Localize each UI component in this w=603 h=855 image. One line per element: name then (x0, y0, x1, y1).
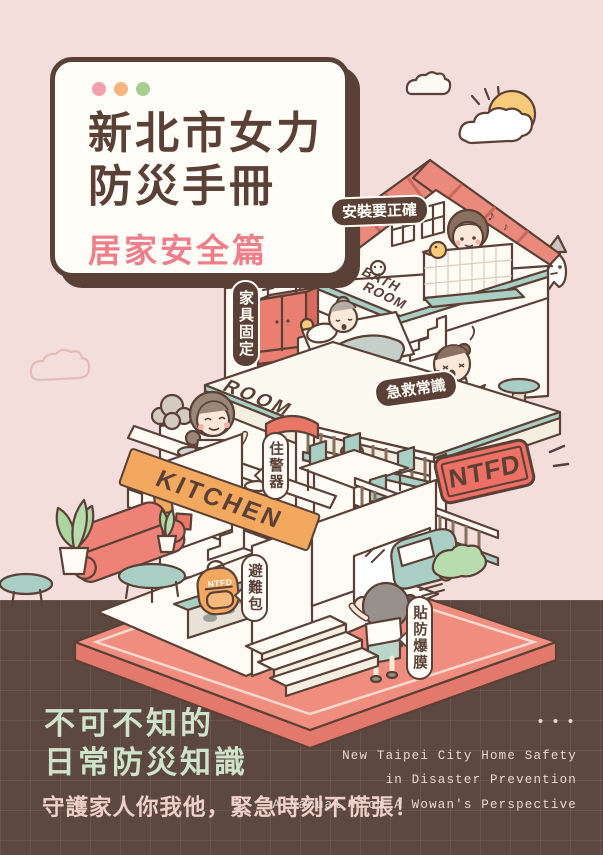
label-install-correctly: 安裝要正確 (330, 194, 430, 227)
music-note-icon: ♪ (503, 221, 509, 233)
steam-puff (152, 395, 192, 429)
poster-subtitle: 居家安全篇 (88, 224, 345, 272)
ntfd-sign-text: NTFD (447, 448, 522, 495)
window-dot-orange (114, 82, 128, 96)
poster-title-line2: 防災手冊 (88, 161, 345, 214)
poster: { "title_card": { "title_line1": "新北市女力"… (0, 0, 603, 855)
outline-cloud-left (31, 350, 89, 380)
small-cloud-icon (407, 72, 450, 94)
window-dot-green (136, 82, 150, 96)
footer-headline-line1: 不可不知的 (44, 704, 248, 743)
duck-icon (430, 242, 446, 258)
window-dots (92, 82, 345, 96)
footer-english: New Taipei City Home Safety in Disaster … (157, 744, 577, 817)
window-dot-pink (92, 82, 106, 96)
label-furniture-fixed: 家具固定 (231, 280, 260, 368)
title-card: 新北市女力 防災手冊 居家安全篇 (50, 57, 350, 278)
footer-english-line1: New Taipei City Home Safety (157, 744, 577, 768)
footer-dots: ••• (536, 714, 581, 731)
footer: 不可不知的 日常防災知識 守護家人你我他，緊急時刻不慌張！ ••• New Ta… (0, 600, 603, 855)
poster-title-line1: 新北市女力 (88, 108, 345, 161)
footer-english-line3: A Manual from A Wowan's Perspective (157, 793, 577, 817)
label-smoke-alarm: 住警器 (262, 432, 289, 500)
sun-icon (460, 87, 535, 143)
footer-english-line2: in Disaster Prevention (157, 768, 577, 792)
